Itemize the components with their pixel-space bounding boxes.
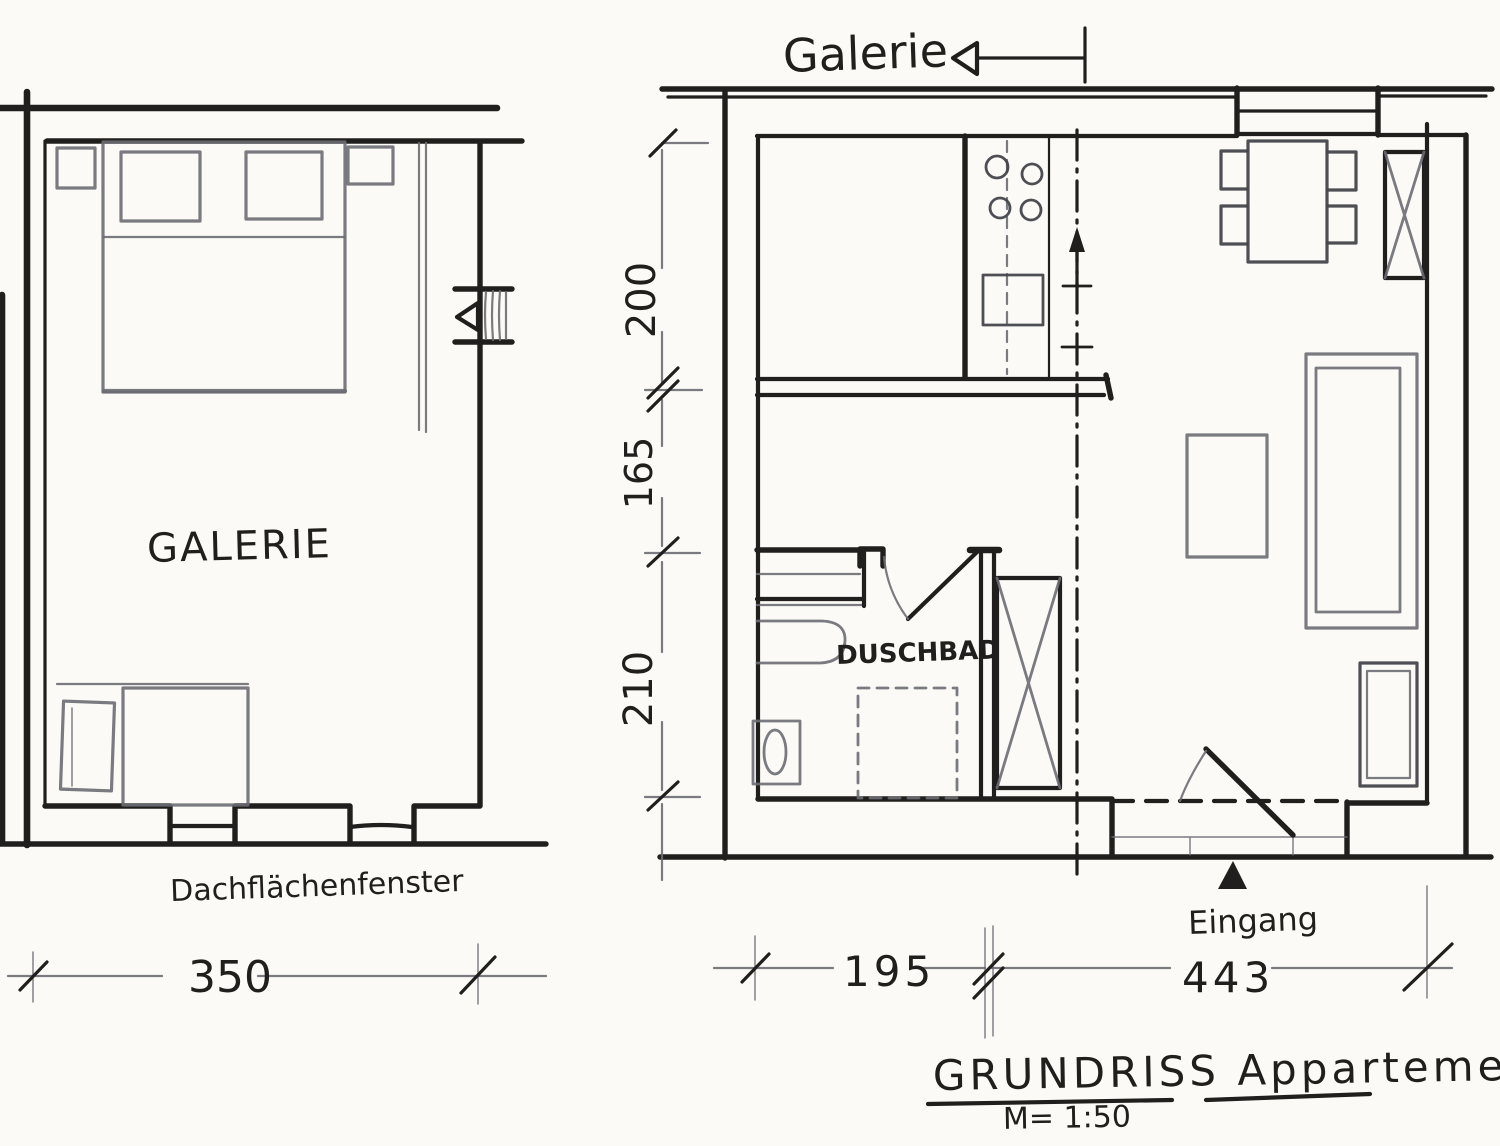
kitchen	[757, 136, 1111, 398]
bathroom-door-swing-arc	[884, 557, 908, 619]
bed-pillow-right	[246, 152, 322, 219]
dim-210-value: 210	[616, 651, 662, 727]
apartment-outer-wall-second-stroke	[668, 96, 1486, 97]
entrance-arrow-icon	[1218, 861, 1247, 889]
bathroom: DUSCHBAD	[753, 549, 1000, 798]
dining-chair	[1328, 206, 1356, 243]
desk-chair	[60, 701, 114, 791]
entrance-door-swing-arc	[1180, 751, 1206, 801]
entrance-sill-line	[1112, 837, 1347, 855]
double-bed	[103, 142, 345, 392]
dim-443-value: 443	[1182, 953, 1274, 1002]
wardrobe-tall	[997, 578, 1060, 788]
shower-area	[858, 688, 957, 798]
gallery-arrow-tail	[977, 28, 1085, 82]
burner-icon	[986, 156, 1008, 178]
nightstand-left	[57, 148, 95, 188]
duschbad-label: DUSCHBAD	[836, 635, 1001, 671]
bed-frame	[103, 142, 345, 392]
cabinet	[1360, 663, 1417, 786]
bathroom-door-leaf	[908, 552, 977, 619]
roof-window-glass-lines	[170, 825, 412, 827]
burner-icon	[1022, 164, 1042, 184]
dimension-350: 350	[8, 944, 546, 1004]
kitchen-sink	[983, 275, 1043, 325]
dining-chair	[1328, 152, 1356, 190]
dim-200-value: 200	[619, 262, 665, 338]
dim-350-value: 350	[188, 952, 272, 1003]
dining-set	[1221, 141, 1356, 262]
bathtub	[757, 621, 845, 663]
washbasin-shelf-front	[757, 549, 864, 606]
coffee-table	[1187, 435, 1267, 557]
ladder-bars	[455, 289, 512, 342]
dimension-horizontal-chain: 195 443	[714, 886, 1452, 1038]
bed-pillow-left	[121, 152, 200, 221]
gallery-section-line	[1062, 130, 1092, 883]
dimension-vertical-chain: 200 165 210	[616, 130, 708, 880]
dining-table	[1248, 141, 1327, 262]
title-block: GRUNDRISS Appartement M= 1:50	[928, 1040, 1500, 1137]
living-area	[1187, 354, 1417, 786]
desk-area	[57, 684, 248, 805]
right-plan-apartment: DUSCHBAD Eingang Galerie 200	[616, 23, 1492, 1038]
dining-chair	[1221, 206, 1247, 244]
gallery-heading: Galerie	[782, 23, 1085, 83]
cupboard-x-cross	[1385, 152, 1424, 278]
drawing-title: GRUNDRISS Appartement	[932, 1040, 1500, 1100]
desk	[123, 688, 248, 805]
bathroom-right-wall	[981, 551, 994, 798]
left-plan-main-walls	[0, 141, 546, 844]
toilet-bowl	[764, 730, 786, 774]
floor-plan-drawing: GALERIE Dachflächenfenster 350	[0, 0, 1500, 1146]
kitchen-counter-bar-end	[1106, 375, 1111, 398]
gallery-direction-arrow-icon	[953, 43, 977, 74]
ladder-direction-triangle-icon	[457, 303, 478, 330]
cupboard-top-right	[1385, 152, 1424, 278]
burner-icon	[1021, 200, 1041, 220]
sofa-seat	[1316, 368, 1400, 612]
floor-plan-sheet: GALERIE Dachflächenfenster 350	[0, 0, 1500, 1146]
gallery-edge-line	[419, 143, 426, 432]
eingang-label: Eingang	[1187, 899, 1318, 942]
cooktop-burners	[986, 156, 1042, 220]
entrance: Eingang	[1112, 749, 1347, 942]
left-plan-galerie: GALERIE Dachflächenfenster 350	[0, 92, 546, 1004]
drawing-scale: M= 1:50	[1003, 1100, 1132, 1137]
loft-ladder	[455, 289, 512, 342]
entrance-door-leaf	[1206, 749, 1293, 835]
ladder-rungs	[485, 291, 506, 340]
galerie-room-label: GALERIE	[146, 521, 332, 572]
dining-chair	[1221, 151, 1247, 189]
roof-window-label: Dachflächenfenster	[170, 864, 465, 909]
top-window	[1237, 88, 1378, 135]
kitchen-counter-bar	[757, 379, 1108, 395]
dim-165-value: 165	[617, 437, 661, 510]
section-arrow-icon	[1069, 227, 1085, 252]
dim-195-value: 195	[843, 947, 935, 996]
nightstand-right	[348, 147, 393, 184]
galerie-heading-label: Galerie	[782, 23, 949, 83]
wardrobe-x-cross	[997, 578, 1060, 788]
cabinet-inner	[1367, 671, 1410, 778]
